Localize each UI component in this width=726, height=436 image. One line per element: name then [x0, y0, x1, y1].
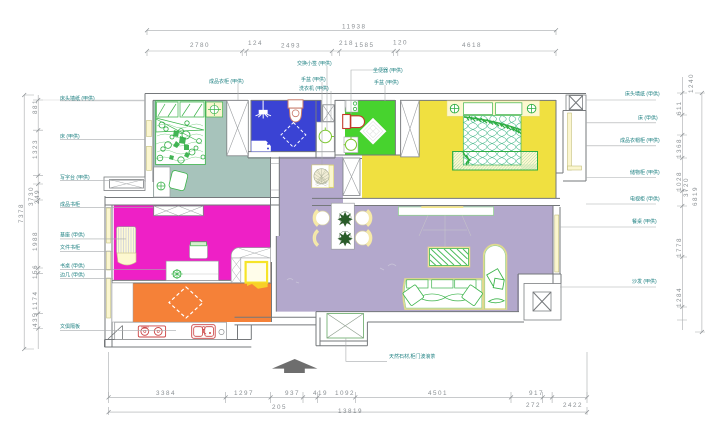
svg-text:6819: 6819: [692, 186, 699, 206]
svg-text:写字台 (甲供): 写字台 (甲供): [60, 174, 90, 181]
svg-text:11938: 11938: [342, 24, 367, 31]
svg-text:611: 611: [676, 100, 683, 115]
svg-text:4618: 4618: [462, 42, 482, 49]
svg-text:7378: 7378: [18, 203, 25, 223]
svg-text:天然石材,柜门波浪茶: 天然石材,柜门波浪茶: [389, 353, 435, 360]
svg-text:成品衣柜 (甲供): 成品衣柜 (甲供): [209, 78, 244, 85]
svg-text:1368: 1368: [676, 138, 683, 158]
svg-text:1092: 1092: [335, 390, 355, 397]
svg-text:272: 272: [526, 402, 541, 409]
svg-text:1323: 1323: [32, 139, 39, 159]
svg-text:储物柜 (甲供): 储物柜 (甲供): [630, 169, 660, 176]
svg-text:1028: 1028: [676, 171, 683, 191]
svg-text:沙发 (甲供): 沙发 (甲供): [632, 278, 657, 285]
svg-text:基座 (甲供): 基座 (甲供): [60, 232, 85, 239]
svg-text:124: 124: [248, 40, 263, 47]
svg-text:文件书柜: 文件书柜: [60, 244, 80, 251]
svg-text:435: 435: [32, 312, 39, 327]
svg-text:1174: 1174: [32, 290, 39, 310]
svg-text:917: 917: [529, 390, 544, 397]
svg-text:120: 120: [393, 40, 408, 47]
svg-text:成品书柜: 成品书柜: [60, 201, 80, 208]
svg-text:2493: 2493: [281, 42, 301, 49]
svg-text:坐便器 (甲供): 坐便器 (甲供): [373, 67, 403, 74]
svg-text:205: 205: [272, 404, 287, 411]
svg-text:床 (甲供): 床 (甲供): [60, 133, 80, 140]
svg-text:1585: 1585: [355, 42, 375, 49]
svg-text:13819: 13819: [338, 408, 363, 415]
svg-text:937: 937: [285, 390, 300, 397]
svg-text:洗衣机 (甲供): 洗衣机 (甲供): [299, 85, 329, 92]
svg-text:餐桌 (甲供): 餐桌 (甲供): [632, 218, 657, 225]
svg-text:边几 (甲供): 边几 (甲供): [60, 272, 85, 279]
svg-text:书桌 (甲供): 书桌 (甲供): [60, 262, 85, 269]
svg-text:1297: 1297: [234, 390, 254, 397]
svg-text:手盆 (甲供): 手盆 (甲供): [374, 79, 399, 86]
svg-text:2422: 2422: [563, 402, 583, 409]
svg-text:手盆 (甲供): 手盆 (甲供): [301, 76, 326, 83]
svg-text:3720: 3720: [683, 177, 690, 197]
svg-text:4501: 4501: [428, 390, 448, 397]
svg-text:床 (甲供): 床 (甲供): [638, 115, 658, 122]
svg-text:交换小签 (甲供): 交换小签 (甲供): [297, 60, 332, 67]
svg-text:1240: 1240: [688, 73, 695, 93]
svg-text:1988: 1988: [32, 231, 39, 251]
svg-text:156: 156: [32, 264, 39, 279]
svg-text:文俱隔板: 文俱隔板: [60, 323, 80, 330]
svg-text:1778: 1778: [676, 237, 683, 257]
svg-text:419: 419: [313, 390, 328, 397]
svg-text:成品衣帽柜 (甲供): 成品衣帽柜 (甲供): [620, 137, 660, 144]
svg-text:218: 218: [339, 40, 354, 47]
svg-text:881: 881: [32, 99, 39, 114]
svg-text:3384: 3384: [156, 390, 176, 397]
svg-text:1284: 1284: [676, 287, 683, 307]
svg-text:249: 249: [34, 189, 41, 204]
svg-text:电视柜 (甲供): 电视柜 (甲供): [630, 196, 660, 203]
svg-text:2780: 2780: [190, 42, 210, 49]
svg-text:床头墙纸 (甲供): 床头墙纸 (甲供): [625, 91, 660, 98]
